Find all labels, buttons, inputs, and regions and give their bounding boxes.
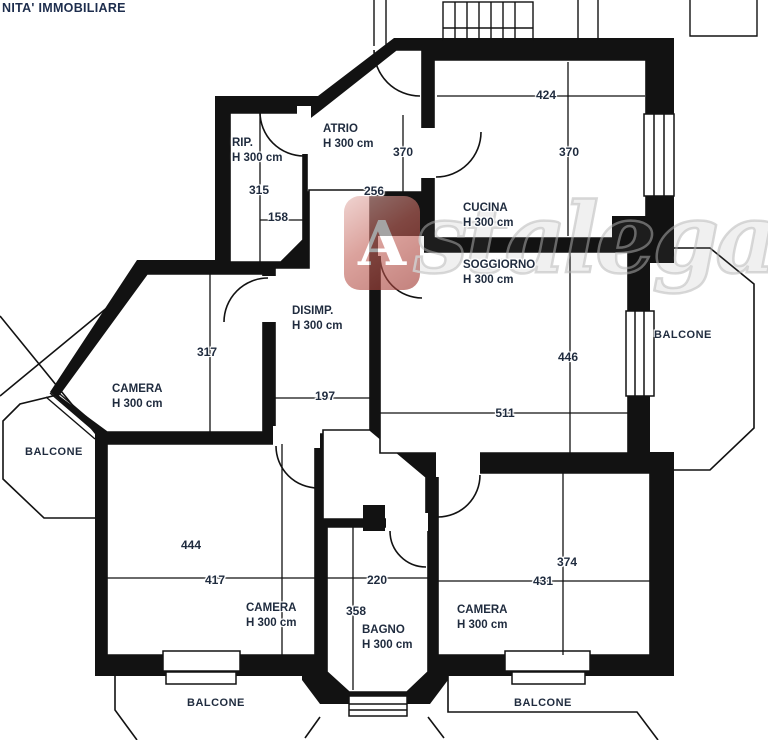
dim-camera-nw-depth: 317 [197, 345, 217, 359]
bagno-window [349, 696, 407, 716]
balcone-label-west: BALCONE [25, 446, 83, 458]
dim-disimp-width: 197 [315, 389, 335, 403]
room-height: H 300 cm [463, 216, 514, 231]
room-height: H 300 cm [246, 616, 297, 631]
bagno-balcony-edge [428, 717, 444, 738]
room-label-disimp: DISIMP. H 300 cm [292, 304, 343, 334]
camera-se-window [505, 651, 590, 671]
dim-soggiorno-depth: 446 [558, 350, 578, 364]
floor-plan-page: { "title": "NITA' IMMOBILIARE", "waterma… [0, 0, 768, 740]
bagno-balcony-edge [305, 717, 320, 738]
room-name: SOGGIORNO [463, 258, 535, 273]
camera-sw-window [163, 651, 240, 671]
balcone-label-east: BALCONE [654, 329, 712, 341]
dim-bagno-depth: 358 [346, 604, 366, 618]
balcone-label-south-east: BALCONE [514, 697, 572, 709]
dim-atrio-width: 256 [364, 184, 384, 198]
bagno-notch [363, 505, 385, 531]
room-height: H 300 cm [463, 273, 535, 288]
dim-atrio-depth: 370 [393, 145, 413, 159]
cucina-corner-pillar [612, 216, 650, 252]
room-height: H 300 cm [362, 638, 413, 653]
room-name: CUCINA [463, 201, 514, 216]
dim-cucina-width: 424 [536, 88, 556, 102]
room-label-camera-se: CAMERA H 300 cm [457, 603, 508, 633]
room-label-bagno: BAGNO H 300 cm [362, 623, 413, 653]
room-height: H 300 cm [112, 397, 163, 412]
room-name: RIP. [232, 136, 283, 151]
page-title: NITA' IMMOBILIARE [2, 1, 126, 15]
room-name: ATRIO [323, 122, 374, 137]
room-label-cucina: CUCINA H 300 cm [463, 201, 514, 231]
room-name: CAMERA [112, 382, 163, 397]
dim-rip-width: 158 [268, 210, 288, 224]
room-name: BAGNO [362, 623, 413, 638]
balcone-east-outline [650, 248, 754, 470]
balcone-south-west-outline [115, 676, 137, 740]
soggiorno-window [626, 311, 654, 396]
room-label-camera-nw: CAMERA H 300 cm [112, 382, 163, 412]
room-height: H 300 cm [232, 151, 283, 166]
room-label-rip: RIP. H 300 cm [232, 136, 283, 166]
room-height: H 300 cm [292, 319, 343, 334]
dim-camera-se-width: 431 [533, 574, 553, 588]
room-name: DISIMP. [292, 304, 343, 319]
cucina-window [644, 114, 674, 196]
room-name: CAMERA [457, 603, 508, 618]
room-name: CAMERA [246, 601, 297, 616]
room-bagno [327, 527, 428, 692]
dim-bagno-width: 220 [367, 573, 387, 587]
room-height: H 300 cm [457, 618, 508, 633]
room-label-camera-sw: CAMERA H 300 cm [246, 601, 297, 631]
room-height: H 300 cm [323, 137, 374, 152]
dim-camera-sw-depth: 444 [181, 538, 201, 552]
dim-cucina-depth: 370 [559, 145, 579, 159]
dim-camera-se-depth: 374 [557, 555, 577, 569]
dim-rip-depth: 315 [249, 183, 269, 197]
dim-camera-sw-width: 417 [205, 573, 225, 587]
dim-soggiorno-width: 511 [495, 406, 514, 420]
room-label-atrio: ATRIO H 300 cm [323, 122, 374, 152]
room-label-soggiorno: SOGGIORNO H 300 cm [463, 258, 535, 288]
balcone-label-south-west: BALCONE [187, 697, 245, 709]
neighbor-outline [690, 0, 757, 36]
